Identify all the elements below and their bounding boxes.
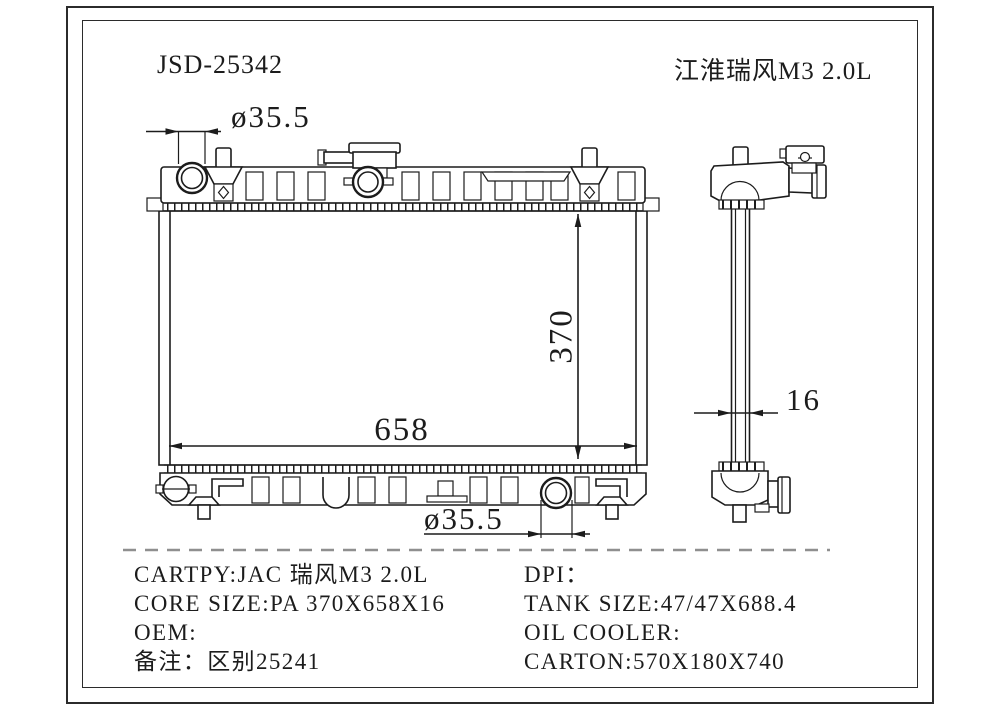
right-mount-pin xyxy=(582,148,597,168)
dim-label-inlet-diameter: ø35.5 xyxy=(231,99,311,134)
bottom-tank-side xyxy=(712,471,790,522)
inlet-pipe xyxy=(177,163,207,193)
spec-block-right: DPI： TANK SIZE:47/47X688.4 OIL COOLER: C… xyxy=(524,560,797,676)
side-outlet-flange xyxy=(778,477,790,513)
dim-label-core-width: 658 xyxy=(374,412,430,448)
bottom-notch xyxy=(323,477,349,508)
core-side xyxy=(719,200,764,471)
dim-label-core-height: 370 xyxy=(544,308,580,364)
spec-oem: OEM: xyxy=(134,618,445,647)
right-foot xyxy=(597,497,627,519)
side-bottom-pin xyxy=(733,505,746,522)
left-mount-pin xyxy=(216,148,231,168)
spec-carton: CARTON:570X180X740 xyxy=(524,647,797,676)
spec-tank-size: TANK SIZE:47/47X688.4 xyxy=(524,589,797,618)
bottom-small-tab xyxy=(438,481,453,496)
left-foot xyxy=(189,497,219,519)
spec-core-size: CORE SIZE:PA 370X658X16 xyxy=(134,589,445,618)
dim-core-thickness: 16 xyxy=(694,382,821,417)
front-view xyxy=(147,143,659,519)
spec-dpi: DPI： xyxy=(524,560,797,589)
spec-block-left: CARTPY:JAC 瑞风M3 2.0L CORE SIZE:PA 370X65… xyxy=(134,560,445,676)
overflow-tube xyxy=(324,152,354,163)
top-tank-side xyxy=(711,146,826,202)
side-view xyxy=(711,146,826,522)
radiator-spec-sheet: JSD-25342 江淮瑞风M3 2.0L xyxy=(0,0,1000,707)
spec-cartpy: CARTPY:JAC 瑞风M3 2.0L xyxy=(134,560,445,589)
spec-note: 备注：区别25241 xyxy=(134,647,445,676)
spec-oil-cooler: OIL COOLER: xyxy=(524,618,797,647)
dim-label-core-thickness: 16 xyxy=(786,382,821,417)
top-mount-plate xyxy=(482,172,570,181)
dim-label-outlet-diameter: ø35.5 xyxy=(424,501,504,536)
filler-cap-body xyxy=(353,152,396,168)
outlet-pipe xyxy=(541,478,571,508)
